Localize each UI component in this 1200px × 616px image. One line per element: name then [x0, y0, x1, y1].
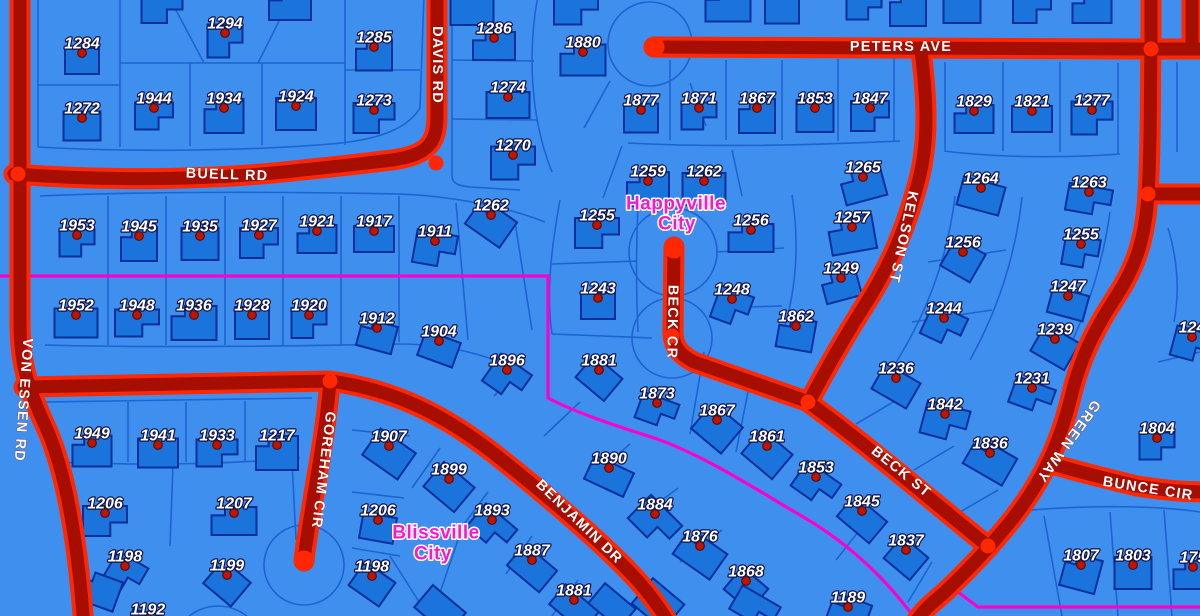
house-number-label: 1881 [556, 583, 592, 600]
house-number-label: 1272 [64, 101, 100, 118]
house-number-label: 1867 [739, 91, 776, 108]
house-number-label: 1821 [1014, 94, 1050, 111]
house-number-label: 1804 [1139, 421, 1175, 438]
house-number-label: 1277 [1074, 93, 1111, 110]
house-number-label: 1948 [119, 298, 155, 315]
house-number-label: 1944 [136, 91, 172, 108]
street-label: BUELL RD [185, 166, 268, 185]
house-number-label: 1262 [686, 164, 722, 181]
house-number-label: 1845 [844, 494, 881, 511]
building-footprint [765, 0, 799, 24]
house-number-label: 1255 [579, 208, 616, 225]
house-number-label: 1198 [108, 549, 143, 566]
road-junction-dot [1141, 187, 1156, 202]
house-number-label: 1933 [199, 428, 235, 445]
house-number-label: 1934 [206, 91, 242, 108]
house-number-label: 1294 [207, 16, 243, 33]
house-number-label: 1247 [1050, 279, 1087, 296]
road-junction-dot [11, 167, 26, 182]
house-number-label: 1935 [182, 219, 219, 236]
house-number-label: 1255 [1063, 227, 1100, 244]
house-number-label: 1862 [778, 309, 814, 326]
house-number-label: 1868 [728, 564, 764, 581]
street-map-canvas[interactable]: VON ESSEN RDBUELL RDDAVIS RDPETERS AVEKE… [0, 0, 1200, 616]
house-number-label: 1890 [591, 451, 627, 468]
house-number-label: 1936 [176, 298, 212, 315]
house-number-label: 1842 [927, 397, 963, 414]
house-number-label: 1262 [473, 198, 509, 215]
house-number-label: 1881 [581, 353, 617, 370]
road-junction-dot [981, 539, 996, 554]
house-number-label: 1907 [371, 429, 408, 446]
house-number-label: 1945 [121, 219, 158, 236]
street-label: PETERS AVE [850, 39, 952, 55]
street-label: DAVIS RD [429, 26, 445, 104]
house-number-label: 1911 [418, 224, 453, 241]
culdesac-cap-dot [664, 238, 685, 259]
house-number-label: 1285 [356, 30, 393, 47]
road-junction-dot [1144, 42, 1159, 57]
house-number-label: 1264 [963, 171, 999, 188]
house-number-label: 1928 [234, 298, 270, 315]
building-footprint [944, 0, 981, 23]
house-number-label: 1189 [831, 590, 866, 607]
house-number-label: 1217 [259, 428, 296, 445]
road-junction-dot [429, 156, 444, 171]
house-number-label: 1920 [291, 298, 327, 315]
house-number-label: 1231 [1014, 371, 1050, 388]
house-number-label: 1199 [210, 558, 245, 575]
house-number-label: 1924 [278, 89, 314, 106]
house-number-label: 1877 [623, 93, 660, 110]
house-number-label: 1876 [682, 529, 718, 546]
house-number-label: 1239 [1037, 322, 1073, 339]
house-number-label: 1286 [476, 21, 512, 38]
house-number-label: 1244 [926, 301, 962, 318]
road-junction-dot [323, 374, 338, 389]
house-number-label: 1917 [356, 214, 393, 231]
house-number-label: 1284 [64, 36, 100, 53]
house-number-label: 1259 [630, 164, 666, 181]
building-footprint [269, 0, 311, 20]
house-number-label: 1256 [733, 213, 769, 230]
house-number-label: 1867 [699, 403, 736, 420]
city-name-label: City [414, 544, 452, 565]
culdesac-cap-dot [294, 551, 315, 572]
house-number-label: 1873 [639, 386, 675, 403]
house-number-label: 1880 [565, 35, 601, 52]
house-number-label: 1899 [431, 462, 467, 479]
house-number-label: 175 [1180, 550, 1200, 567]
house-number-label: 1206 [360, 503, 396, 520]
house-number-label: 1837 [888, 533, 925, 550]
house-number-label: 1273 [356, 93, 392, 110]
house-number-label: 1256 [945, 235, 981, 252]
building-footprint [890, 0, 926, 26]
house-number-label: 1257 [834, 210, 871, 227]
house-number-label: 1829 [956, 94, 992, 111]
house-number-label: 1884 [637, 497, 673, 514]
house-number-label: 124 [1179, 320, 1200, 337]
city-name-label: Blissville [392, 523, 479, 544]
house-number-label: 1927 [241, 218, 278, 235]
house-number-label: 1949 [74, 426, 110, 443]
house-number-label: 1912 [359, 311, 395, 328]
house-number-label: 1263 [1071, 175, 1107, 192]
house-number-label: 1248 [714, 282, 750, 299]
house-number-label: 1847 [852, 91, 889, 108]
house-number-label: 1207 [216, 496, 253, 513]
house-number-label: 1904 [421, 324, 457, 341]
street-label: BECK CR [663, 285, 680, 360]
house-number-label: 1921 [299, 214, 335, 231]
house-number-label: 1243 [580, 281, 616, 298]
building-footprint [1073, 0, 1112, 23]
culdesac-cap-dot [644, 37, 665, 58]
city-name-label: City [658, 214, 696, 235]
house-number-label: 1887 [514, 543, 551, 560]
house-number-label: 1953 [59, 218, 95, 235]
house-number-label: 1206 [87, 496, 123, 513]
house-number-label: 1198 [355, 559, 390, 576]
house-number-label: 1236 [878, 361, 914, 378]
house-number-label: 1265 [845, 160, 882, 177]
house-number-label: 1274 [490, 80, 526, 97]
house-number-label: 1807 [1063, 548, 1100, 565]
house-number-label: 1270 [495, 138, 531, 155]
city-name-label: Happyville [626, 194, 726, 215]
house-number-label: 1192 [131, 602, 166, 616]
house-number-label: 1896 [489, 353, 525, 370]
road-junction-dot [801, 395, 816, 410]
house-number-label: 1803 [1115, 548, 1151, 565]
house-number-label: 1861 [749, 429, 785, 446]
house-number-label: 1941 [140, 428, 176, 445]
house-number-label: 1853 [798, 460, 834, 477]
house-number-label: 1871 [681, 91, 717, 108]
house-number-label: 1249 [823, 261, 859, 278]
house-number-label: 1893 [474, 503, 510, 520]
house-number-label: 1853 [797, 91, 833, 108]
building-footprint [706, 0, 751, 22]
house-number-label: 1952 [58, 298, 94, 315]
parcel-line [452, 119, 537, 120]
house-number-label: 1836 [972, 436, 1008, 453]
